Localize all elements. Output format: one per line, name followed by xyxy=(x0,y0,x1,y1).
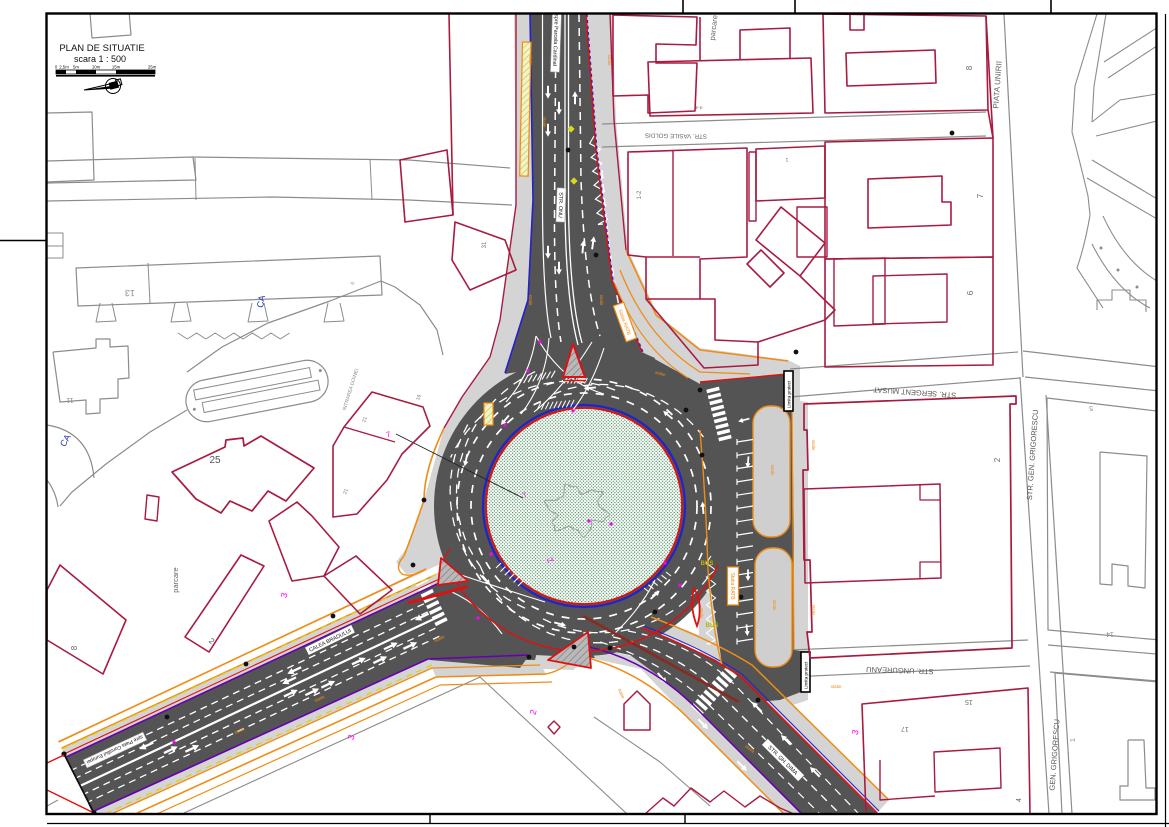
svg-text:13: 13 xyxy=(125,288,135,298)
svg-text:Statia RATB: Statia RATB xyxy=(729,572,735,600)
svg-text:BUS: BUS xyxy=(701,561,714,567)
svg-text:statie: statie xyxy=(528,295,533,306)
svg-text:15: 15 xyxy=(965,698,973,705)
svg-text:PLAN DE SITUATIE: PLAN DE SITUATIE xyxy=(59,43,144,54)
svg-text:14: 14 xyxy=(1106,630,1114,637)
svg-text:statie: statie xyxy=(811,605,816,616)
svg-text:31: 31 xyxy=(482,241,488,248)
svg-text:statie: statie xyxy=(772,600,777,611)
svg-text:STR. VASILE GOLDIS: STR. VASILE GOLDIS xyxy=(645,131,707,139)
svg-text:statie: statie xyxy=(831,684,842,689)
svg-text:statie: statie xyxy=(599,295,604,306)
svg-text:statie: statie xyxy=(607,55,612,66)
svg-text:10m: 10m xyxy=(92,65,101,70)
svg-text:Limita proiect: Limita proiect xyxy=(787,380,792,408)
svg-text:1: 1 xyxy=(785,156,788,162)
svg-text:statie: statie xyxy=(699,608,704,619)
svg-text:SL: SL xyxy=(349,281,355,286)
svg-text:statie: statie xyxy=(528,55,533,66)
svg-text:7: 7 xyxy=(976,193,985,198)
svg-text:BUS: BUS xyxy=(706,623,719,629)
svg-text:CA: CA xyxy=(255,294,267,308)
svg-text:8: 8 xyxy=(965,65,974,70)
svg-text:4-4: 4-4 xyxy=(695,104,703,110)
svg-text:11: 11 xyxy=(66,396,73,403)
svg-text:1-2: 1-2 xyxy=(637,190,643,199)
svg-text:parcare: parcare xyxy=(171,567,180,592)
svg-text:STR. ONU: STR. ONU xyxy=(557,192,564,218)
svg-text:6: 6 xyxy=(966,290,975,295)
svg-text:scara 1 : 500: scara 1 : 500 xyxy=(74,54,126,64)
svg-text:statie: statie xyxy=(770,465,775,476)
svg-text:2,5m: 2,5m xyxy=(59,65,69,70)
svg-text:statie: statie xyxy=(542,117,547,128)
svg-text:statie: statie xyxy=(811,440,816,451)
svg-text:25m: 25m xyxy=(148,65,157,70)
svg-text:17: 17 xyxy=(901,725,909,732)
svg-text:15m: 15m xyxy=(112,65,121,70)
svg-text:1: 1 xyxy=(1070,738,1077,742)
svg-text:Limita proiect: Limita proiect xyxy=(804,661,809,689)
svg-text:25: 25 xyxy=(209,455,221,466)
svg-text:5m: 5m xyxy=(73,65,79,70)
svg-text:4: 4 xyxy=(1016,798,1023,802)
svg-text:8: 8 xyxy=(70,645,79,650)
svg-text:2: 2 xyxy=(993,457,1002,462)
svg-text:····: ···· xyxy=(547,505,553,511)
svg-text:5: 5 xyxy=(1089,404,1093,411)
